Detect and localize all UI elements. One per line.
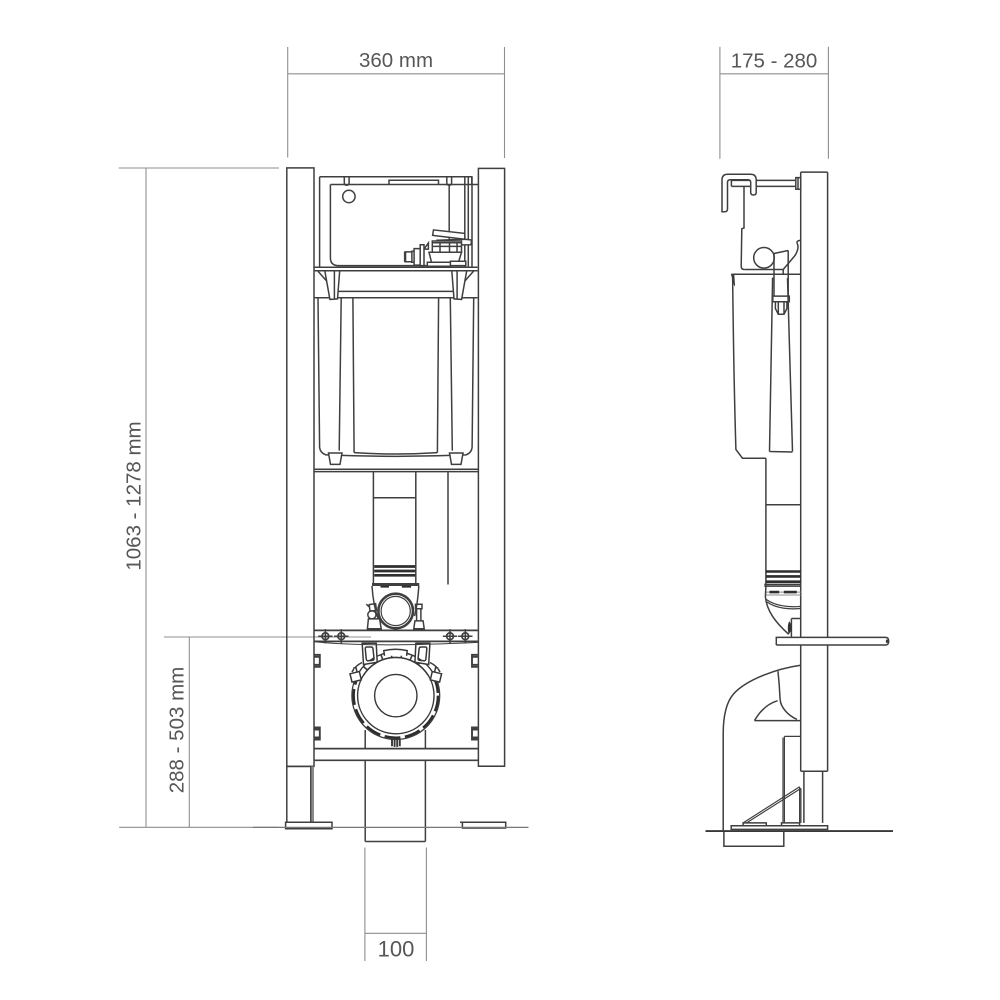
svg-text:175 - 280: 175 - 280 [731,50,818,73]
svg-text:1063 - 1278 mm: 1063 - 1278 mm [123,421,146,570]
svg-text:100: 100 [378,937,415,962]
svg-text:288 - 503 mm: 288 - 503 mm [166,667,189,793]
svg-text:360 mm: 360 mm [359,49,433,72]
